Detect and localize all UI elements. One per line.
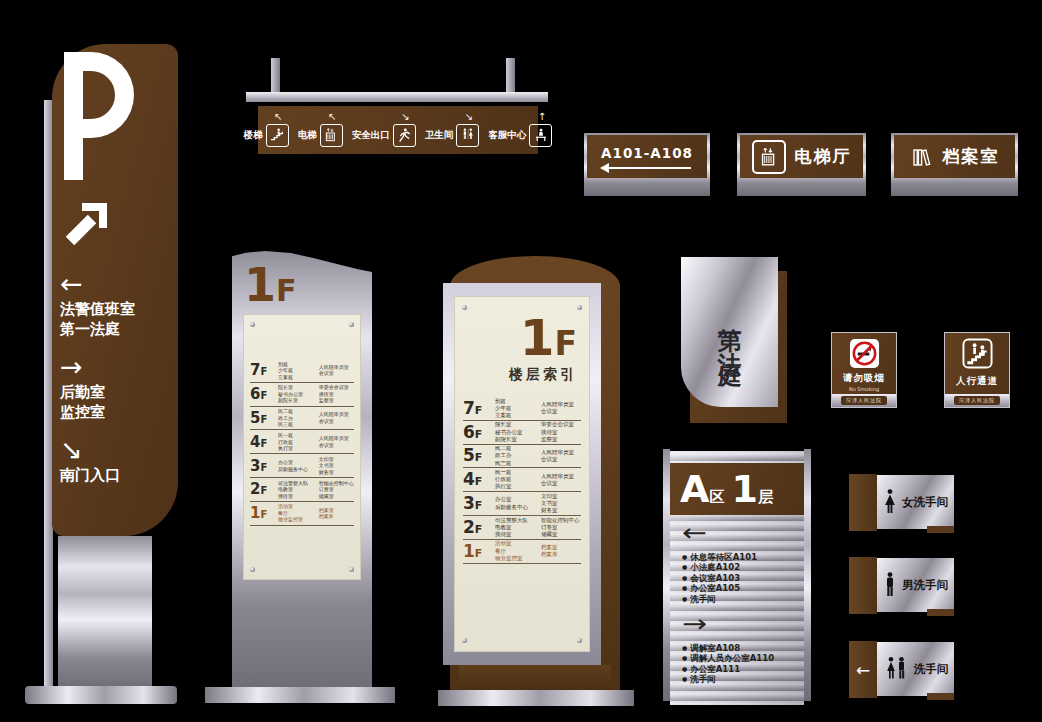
parking-direction-list: ← 法警值班室 第一法庭 → 后勤室 监控室 ↘ 南门入口 — [60, 270, 172, 486]
pedestrian-passage-icon — [962, 338, 993, 369]
room-group: 休息等待区A101小法庭A102会议室A103办公室A105洗手间 — [682, 552, 798, 604]
room-list-item: 办公室A105 — [682, 583, 798, 593]
hanging-sign-post — [271, 58, 280, 94]
floor-label: 2F — [463, 519, 495, 536]
hanging-sign-item: ↘ 卫生间 — [425, 114, 480, 147]
floor-rooms-right: 智能化控制中心 订卷室 储藏室 — [541, 517, 581, 538]
floor-rooms-right: 人民陪审员室 会议室 — [319, 411, 354, 424]
floor-rooms-left: 活动室 餐厅 物业监控室 — [495, 540, 541, 561]
parking-p-letter — [64, 52, 134, 180]
floor-rooms-right: 人民陪审员室 会议室 — [319, 435, 354, 448]
sign-footer-strip: 菏泽人民法院 — [945, 394, 1009, 407]
floor-rooms-left: 司法警察大队 电教室 接待室 — [278, 480, 319, 500]
floor-label: 7F — [250, 362, 278, 378]
court-name-plate: 菏泽人民法院 — [841, 396, 887, 405]
screw — [577, 305, 582, 310]
floor-number-heading: 1F — [244, 262, 297, 308]
directory-floor-row: 4F 民一庭 行政庭 执行室 人民陪审员室 会议室 — [250, 430, 354, 454]
direction-arrow-icon: ↖ — [328, 112, 336, 122]
elevator-hall-sign: 电梯厅 — [737, 133, 866, 196]
floor-digit: 1 — [244, 258, 276, 312]
floor-rooms-left: 民一庭 行政庭 执行室 — [278, 432, 319, 452]
floor-rooms-left: 院长室 秘书办公室 副院长室 — [495, 421, 541, 442]
floor-label: 6F — [250, 386, 278, 402]
restroom-label: 女洗手间 — [902, 495, 948, 510]
arrow-left-icon: ← — [682, 521, 827, 545]
floor-label: 2F — [250, 481, 278, 497]
floor-number-heading: 1F 楼层索引 — [509, 313, 577, 381]
floor-rooms-left: 办公室 后勤服务中心 — [495, 496, 541, 510]
sign-footer-strip: 菏泽人民法院 — [832, 394, 896, 407]
directory-floor-row: 3F 办公室 后勤服务中心 文印室 文书室 财务室 — [250, 454, 354, 478]
exit-run-icon — [393, 124, 416, 147]
direction-labels: 后勤室 监控室 — [60, 383, 172, 423]
room-group: 调解室A108调解人员办公室A110办公室A111洗手间 — [682, 643, 798, 685]
directory-floor-row: 1F 活动室 餐厅 物业监控室 档案室 档案库 — [463, 540, 581, 564]
directory-floor-row: 2F 司法警察大队 电教室 接待室 智能化控制中心 订卷室 储藏室 — [250, 478, 354, 502]
directory-floor-row: 6F 院长室 秘书办公室 副院长室 审委会会议室 接待室 监察室 — [463, 421, 581, 445]
directory-floor-row: 7F 刑庭 少年庭 立案庭 人民陪审员室 会议室 — [250, 359, 354, 383]
hanging-sign-item: ↑ 客服中心 — [488, 114, 552, 147]
restroom-sign: 洗手间 — [877, 642, 954, 696]
no-smoking-title: 请勿吸烟 — [843, 372, 885, 385]
female-icon — [883, 489, 897, 515]
floor-directory-large: 1F 楼层索引 7F 刑庭 少年庭 立案庭 人民陪审员室 会议室 6F 院长室 … — [443, 283, 601, 665]
restroom-sign-bar: ← — [849, 641, 877, 698]
floor-rooms-left: 办公室 后勤服务中心 — [278, 459, 319, 472]
elevator-icon — [320, 124, 343, 147]
facility-label: 楼梯 — [244, 129, 263, 142]
restroom-label: 洗手间 — [914, 662, 949, 677]
directory-panel: 1F 楼层索引 7F 刑庭 少年庭 立案庭 人民陪审员室 会议室 6F 院长室 … — [454, 296, 590, 652]
zone-directory-sign: A区1层 ← 休息等待区A101小法庭A102会议室A103办公室A105洗手间… — [670, 451, 804, 705]
archive-icon — [910, 145, 934, 169]
pedestrian-passage-title: 人行通道 — [956, 375, 998, 388]
courtroom-label: 第一法庭 — [714, 310, 746, 354]
room-list-item: 调解室A108 — [682, 643, 798, 653]
parking-p-stem — [64, 52, 83, 180]
floor-rooms-left: 院长室 秘书办公室 副院长室 — [278, 384, 319, 404]
directory-floor-row: 4F 民一庭 行政庭 执行室 人民陪审员室 会议室 — [463, 468, 581, 492]
arrow-left-icon: ← — [856, 660, 870, 680]
arrow-right-icon: → — [682, 612, 827, 636]
direction-arrow-icon: ↑ — [538, 112, 546, 122]
floor-rooms-left: 民二庭 政工办 民三庭 — [495, 445, 541, 466]
directory-panel: 7F 刑庭 少年庭 立案庭 人民陪审员室 会议室 6F 院长室 秘书办公室 副院… — [243, 314, 361, 580]
directory-base — [205, 687, 395, 703]
room-list-item: 洗手间 — [682, 594, 798, 604]
stairs-icon — [266, 124, 289, 147]
directory-floor-row: 7F 刑庭 少年庭 立案庭 人民陪审员室 会议室 — [463, 397, 581, 421]
no-smoking-icon — [849, 338, 880, 369]
floor-label: 3F — [463, 495, 495, 512]
restroom-sign-bar — [849, 557, 877, 614]
elevator-hall-label: 电梯厅 — [795, 145, 852, 168]
floor-rooms-left: 刑庭 少年庭 立案庭 — [495, 398, 541, 419]
room-list-item: 洗手间 — [682, 674, 798, 684]
floor-label: 4F — [463, 471, 495, 488]
parking-pylon-column — [58, 536, 152, 688]
restroom-sign-tab — [927, 526, 954, 533]
elevator-icon — [752, 140, 786, 174]
facility-label: 卫生间 — [425, 129, 454, 142]
direction-arrow-icon: ↖ — [274, 112, 282, 122]
direction-labels: 南门入口 — [60, 466, 172, 486]
floor-rooms-right: 人民陪审员室 会议室 — [541, 473, 581, 487]
floor-rooms-left: 司法警察大队 电教室 接待室 — [495, 517, 541, 538]
hanging-sign-item: ↖ 楼梯 — [244, 114, 289, 147]
floor-digit: 1 — [520, 309, 555, 367]
floor-rooms-left: 刑庭 少年庭 立案庭 — [278, 361, 319, 381]
floor-suffix: F — [276, 273, 297, 308]
hanging-sign-rail — [246, 92, 548, 102]
floor-label: 5F — [463, 447, 495, 464]
room-list-item: 调解人员办公室A110 — [682, 653, 798, 663]
hanging-sign-item: ↖ 电梯 — [298, 114, 343, 147]
signage-design-board: ← 法警值班室 第一法庭 → 后勤室 监控室 ↘ 南门入口 ↖ — [0, 0, 1042, 722]
parking-pylon-base — [25, 686, 177, 704]
facility-label: 电梯 — [298, 129, 317, 142]
zone-floor-number: 1 — [731, 463, 757, 515]
archive-room-label: 档案室 — [943, 145, 1000, 168]
hanging-sign-item: ↘ 安全出口 — [352, 114, 416, 147]
facility-label: 安全出口 — [352, 129, 390, 142]
floor-rooms-right: 审委会会议室 接待室 监察室 — [541, 421, 581, 442]
floor-rooms-right: 人民陪审员室 会议室 — [541, 401, 581, 415]
court-name-plate: 菏泽人民法院 — [954, 396, 1000, 405]
zone-directory-rail — [804, 449, 811, 701]
floor-label: 6F — [463, 424, 495, 441]
arrow-up-right-icon — [62, 196, 114, 248]
screw — [462, 638, 467, 643]
service-desk-icon — [529, 124, 552, 147]
screw — [462, 305, 467, 310]
direction-entry: ↘ 南门入口 — [60, 436, 172, 486]
facility-label: 客服中心 — [488, 129, 526, 142]
room-list-item: 休息等待区A101 — [682, 552, 798, 562]
direction-arrow-icon: ↘ — [465, 112, 473, 122]
floor-directory-small: 1F 7F 刑庭 少年庭 立案庭 人民陪审员室 会议室 6F 院长室 秘书 — [232, 250, 372, 690]
screw — [250, 567, 255, 572]
directory-subtitle: 楼层索引 — [509, 367, 577, 381]
zone-letter: A — [680, 463, 709, 515]
floor-rooms-right: 人民陪审员室 会议室 — [541, 449, 581, 463]
screw — [577, 638, 582, 643]
hanging-sign-post — [506, 58, 515, 94]
directory-floor-row: 2F 司法警察大队 电教室 接待室 智能化控制中心 订卷室 储藏室 — [463, 516, 581, 540]
directory-floor-row: 1F 活动室 餐厅 物业监控室 档案室 档案库 — [250, 502, 354, 526]
direction-labels: 法警值班室 第一法庭 — [60, 300, 172, 340]
floor-label: 1F — [250, 505, 278, 521]
men-restroom-sign: 男洗手间 — [877, 558, 954, 612]
floor-rooms-right: 文印室 文书室 财务室 — [541, 493, 581, 514]
direction-entry: ← 法警值班室 第一法庭 — [60, 270, 172, 340]
floor-rooms-right: 档案室 档案库 — [319, 507, 354, 520]
women-restroom-sign: 女洗手间 — [877, 475, 954, 529]
zone-floor-suffix: 层 — [758, 488, 773, 507]
restroom-label: 男洗手间 — [902, 578, 948, 593]
zone-suffix: 区 — [709, 488, 724, 507]
zone-heading: A区1层 — [670, 463, 804, 515]
arrow-left-icon — [601, 167, 691, 169]
screw — [349, 567, 354, 572]
family-icon — [883, 656, 909, 682]
parking-pylon: ← 法警值班室 第一法庭 → 后勤室 监控室 ↘ 南门入口 — [52, 44, 178, 536]
floor-rooms-left: 民一庭 行政庭 执行室 — [495, 469, 541, 490]
room-list-item: 小法庭A102 — [682, 562, 798, 572]
toilet-pair-icon — [456, 124, 479, 147]
restroom-sign-tab — [927, 693, 954, 700]
direction-entry: → 后勤室 监控室 — [60, 353, 172, 423]
direction-arrow-icon: ↘ — [60, 436, 172, 464]
no-smoking-subtitle: No Smoking — [849, 386, 879, 392]
male-icon — [883, 572, 897, 598]
floor-rooms-right: 人民陪审员室 会议室 — [319, 364, 354, 377]
floor-rooms-right: 智能化控制中心 订卷室 储藏室 — [319, 480, 354, 500]
direction-arrow-icon: ↘ — [401, 112, 409, 122]
screw — [250, 322, 255, 327]
floor-label: 1F — [463, 543, 495, 560]
first-courtroom-sign: 第一法庭 — [681, 257, 778, 407]
floor-label: 5F — [250, 410, 278, 426]
hanging-sign-panel: ↖ 楼梯 ↖ 电梯 ↘ 安全出口 ↘ 卫生间 ↑ — [258, 106, 538, 154]
directory-pedestal — [459, 665, 611, 690]
archive-room-sign: 档案室 — [891, 133, 1018, 196]
floor-label: 3F — [250, 458, 278, 474]
floor-rooms-right: 审委会会议室 接待室 监察室 — [319, 384, 354, 404]
room-range-sign: A101-A108 — [584, 133, 710, 196]
floor-list: 7F 刑庭 少年庭 立案庭 人民陪审员室 会议室 6F 院长室 秘书办公室 副院… — [463, 397, 581, 564]
directory-floor-row: 5F 民二庭 政工办 民三庭 人民陪审员室 会议室 — [250, 407, 354, 431]
directory-base — [438, 690, 634, 706]
no-smoking-sign: 请勿吸烟 No Smoking 菏泽人民法院 — [831, 332, 897, 408]
room-list-item: 办公室A111 — [682, 664, 798, 674]
screw — [349, 322, 354, 327]
floor-list: 7F 刑庭 少年庭 立案庭 人民陪审员室 会议室 6F 院长室 秘书办公室 副院… — [250, 359, 354, 526]
zone-directory-rail — [663, 449, 670, 701]
room-list-item: 会议室A103 — [682, 573, 798, 583]
directory-floor-row: 3F 办公室 后勤服务中心 文印室 文书室 财务室 — [463, 492, 581, 516]
floor-suffix: F — [554, 324, 577, 363]
directory-floor-row: 6F 院长室 秘书办公室 副院长室 审委会会议室 接待室 监察室 — [250, 383, 354, 407]
direction-arrow-icon: → — [60, 353, 172, 381]
pedestrian-passage-sign: 人行通道 菏泽人民法院 — [944, 332, 1010, 408]
zone-room-list: ← 休息等待区A101小法庭A102会议室A103办公室A105洗手间 → 调解… — [682, 521, 798, 693]
floor-rooms-left: 活动室 餐厅 物业监控室 — [278, 503, 319, 523]
floor-label: 7F — [463, 400, 495, 417]
direction-arrow-icon: ← — [60, 270, 172, 298]
restroom-sign-tab — [927, 609, 954, 616]
directory-floor-row: 5F 民二庭 政工办 民三庭 人民陪审员室 会议室 — [463, 445, 581, 469]
floor-rooms-right: 文印室 文书室 财务室 — [319, 456, 354, 476]
floor-label: 4F — [250, 434, 278, 450]
restroom-sign-bar — [849, 474, 877, 531]
floor-rooms-right: 档案室 档案库 — [541, 544, 581, 558]
room-range-label: A101-A108 — [601, 145, 693, 161]
floor-rooms-left: 民二庭 政工办 民三庭 — [278, 408, 319, 428]
